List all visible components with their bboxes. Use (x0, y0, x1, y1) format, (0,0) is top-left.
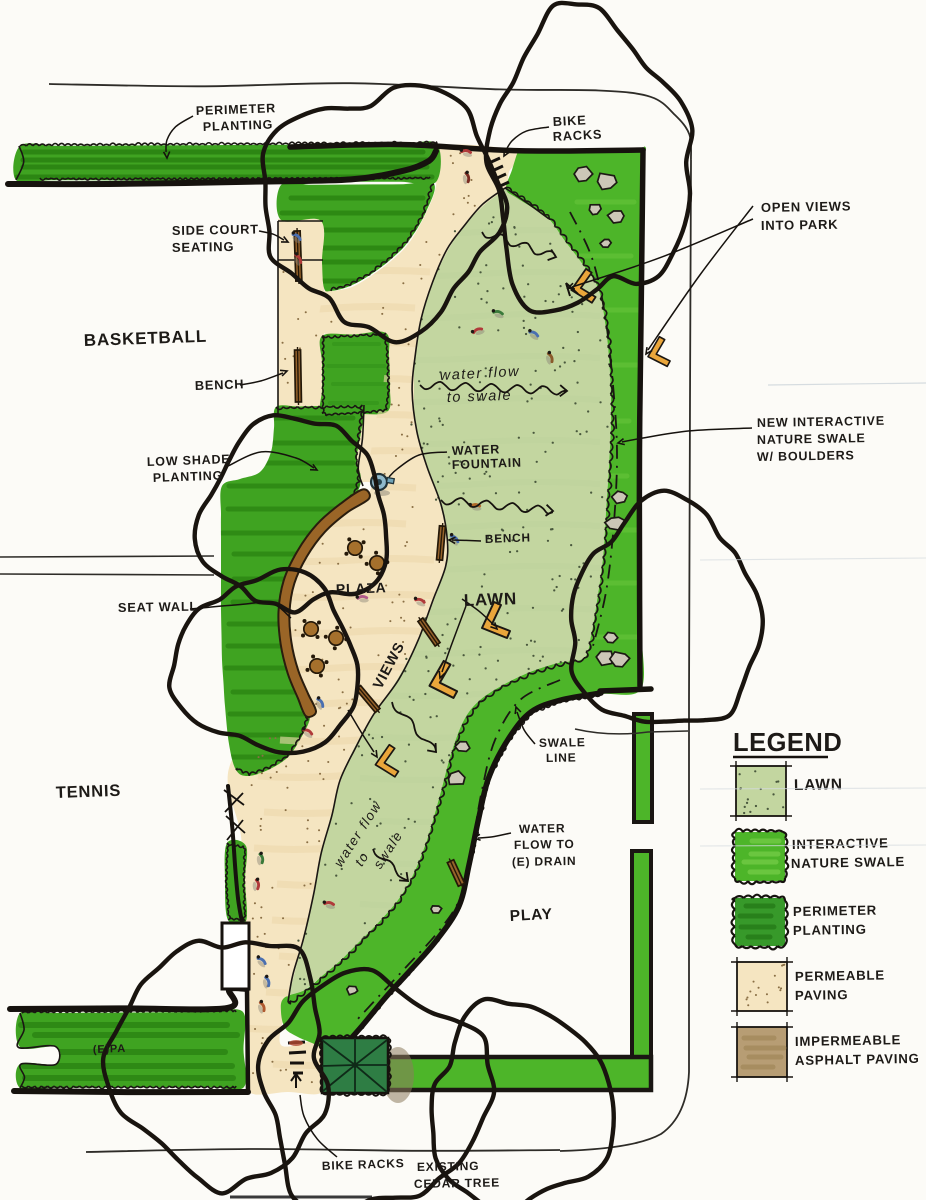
svg-text:W/ BOULDERS: W/ BOULDERS (757, 448, 855, 464)
svg-text:PLAZA: PLAZA (336, 579, 387, 597)
svg-text:LAWN: LAWN (794, 776, 843, 794)
svg-text:TENNIS: TENNIS (56, 782, 122, 802)
svg-text:PLANTING: PLANTING (793, 922, 867, 938)
svg-text:FOUNTAIN: FOUNTAIN (452, 456, 523, 472)
svg-text:PLANTING: PLANTING (203, 118, 274, 134)
svg-text:BENCH: BENCH (485, 530, 531, 546)
svg-text:RACKS: RACKS (552, 126, 602, 144)
svg-text:BENCH: BENCH (195, 376, 245, 393)
svg-text:SEATING: SEATING (172, 239, 235, 255)
svg-text:BIKE: BIKE (552, 112, 587, 129)
svg-text:PLANTING: PLANTING (153, 469, 224, 485)
svg-text:LOW SHADE: LOW SHADE (147, 452, 231, 469)
svg-text:LINE: LINE (546, 750, 577, 765)
svg-text:EXISTING: EXISTING (417, 1159, 480, 1174)
svg-text:NATURE SWALE: NATURE SWALE (757, 431, 866, 447)
svg-text:SWALE: SWALE (539, 735, 586, 750)
svg-text:PERIMETER: PERIMETER (793, 903, 877, 919)
svg-text:to swale: to swale (447, 388, 513, 406)
svg-text:ASPHALT PAVING: ASPHALT PAVING (795, 1051, 920, 1068)
svg-text:LEGEND: LEGEND (733, 729, 842, 757)
svg-text:NATURE SWALE: NATURE SWALE (791, 854, 905, 871)
svg-text:IMPERMEABLE: IMPERMEABLE (795, 1032, 901, 1049)
svg-text:PERIMETER: PERIMETER (196, 101, 277, 118)
svg-text:NEW INTERACTIVE: NEW INTERACTIVE (757, 414, 885, 430)
svg-text:OPEN VIEWS: OPEN VIEWS (761, 198, 852, 215)
svg-text:PAVING: PAVING (795, 987, 849, 1003)
svg-text:SIDE COURT: SIDE COURT (172, 221, 259, 238)
svg-text:INTO PARK: INTO PARK (761, 217, 839, 233)
svg-text:FLOW TO: FLOW TO (514, 837, 575, 852)
svg-text:(E)PA: (E)PA (93, 1043, 127, 1056)
svg-text:WATER: WATER (519, 821, 566, 836)
svg-text:BIKE RACKS: BIKE RACKS (322, 1156, 405, 1173)
svg-text:INTERACTIVE: INTERACTIVE (792, 835, 889, 852)
svg-text:SEAT WALL: SEAT WALL (118, 599, 198, 615)
svg-text:(E) DRAIN: (E) DRAIN (512, 854, 577, 869)
svg-text:CEDAR TREE: CEDAR TREE (414, 1176, 500, 1191)
svg-text:PERMEABLE: PERMEABLE (795, 967, 885, 984)
svg-text:PLAY: PLAY (509, 906, 553, 925)
svg-text:LAWN: LAWN (463, 589, 517, 610)
